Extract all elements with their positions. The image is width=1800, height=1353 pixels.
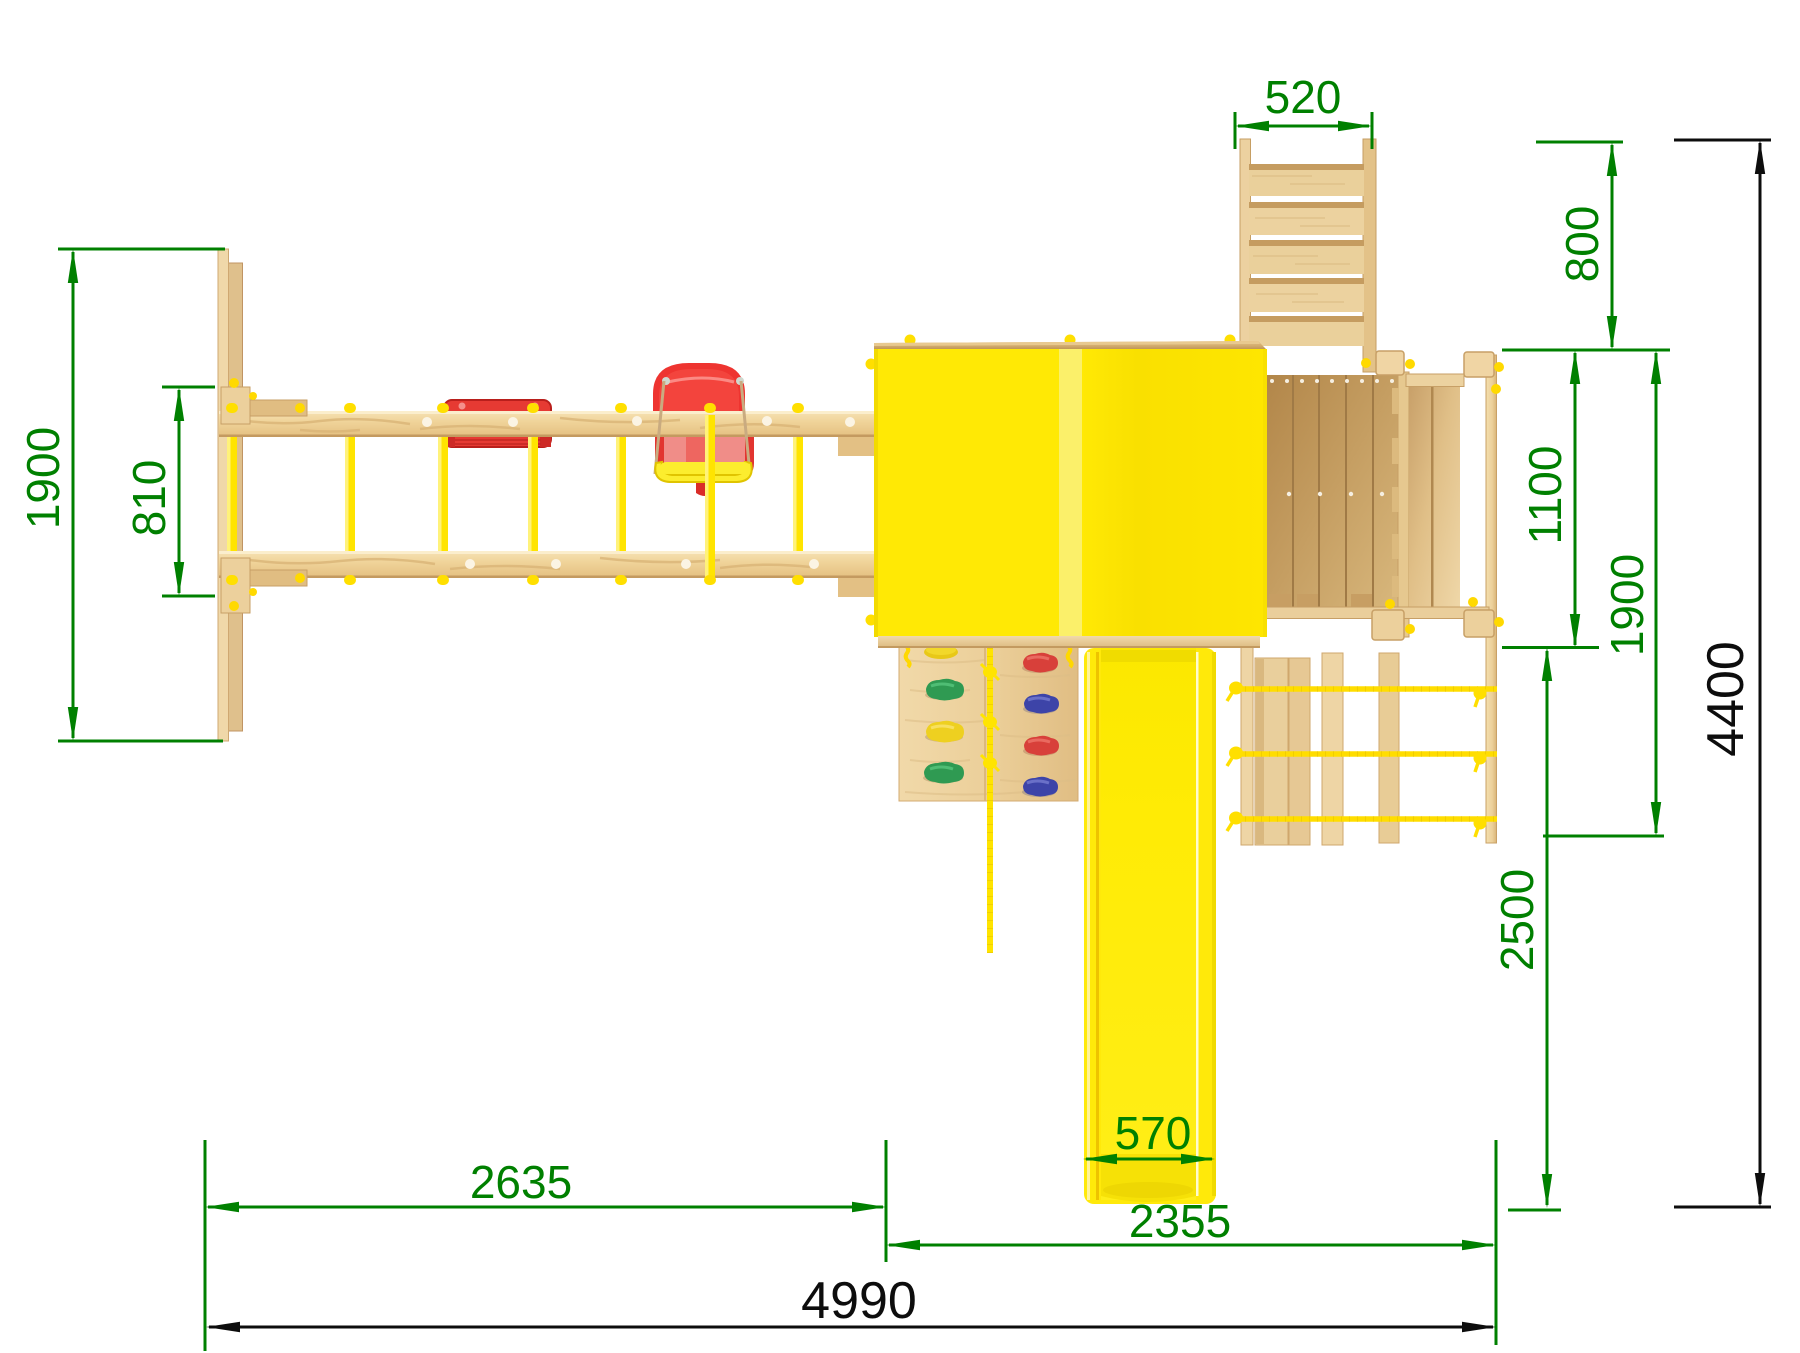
svg-text:2635: 2635 <box>470 1156 572 1208</box>
svg-text:810: 810 <box>123 460 175 537</box>
svg-text:2500: 2500 <box>1491 869 1543 971</box>
svg-text:570: 570 <box>1115 1107 1192 1159</box>
svg-text:1900: 1900 <box>17 427 69 529</box>
svg-text:4400: 4400 <box>1697 641 1755 757</box>
svg-text:2355: 2355 <box>1129 1195 1231 1247</box>
svg-text:1900: 1900 <box>1601 554 1653 656</box>
svg-text:1100: 1100 <box>1519 446 1571 545</box>
svg-text:800: 800 <box>1556 206 1608 283</box>
svg-text:520: 520 <box>1265 71 1342 123</box>
svg-text:4990: 4990 <box>801 1272 917 1330</box>
